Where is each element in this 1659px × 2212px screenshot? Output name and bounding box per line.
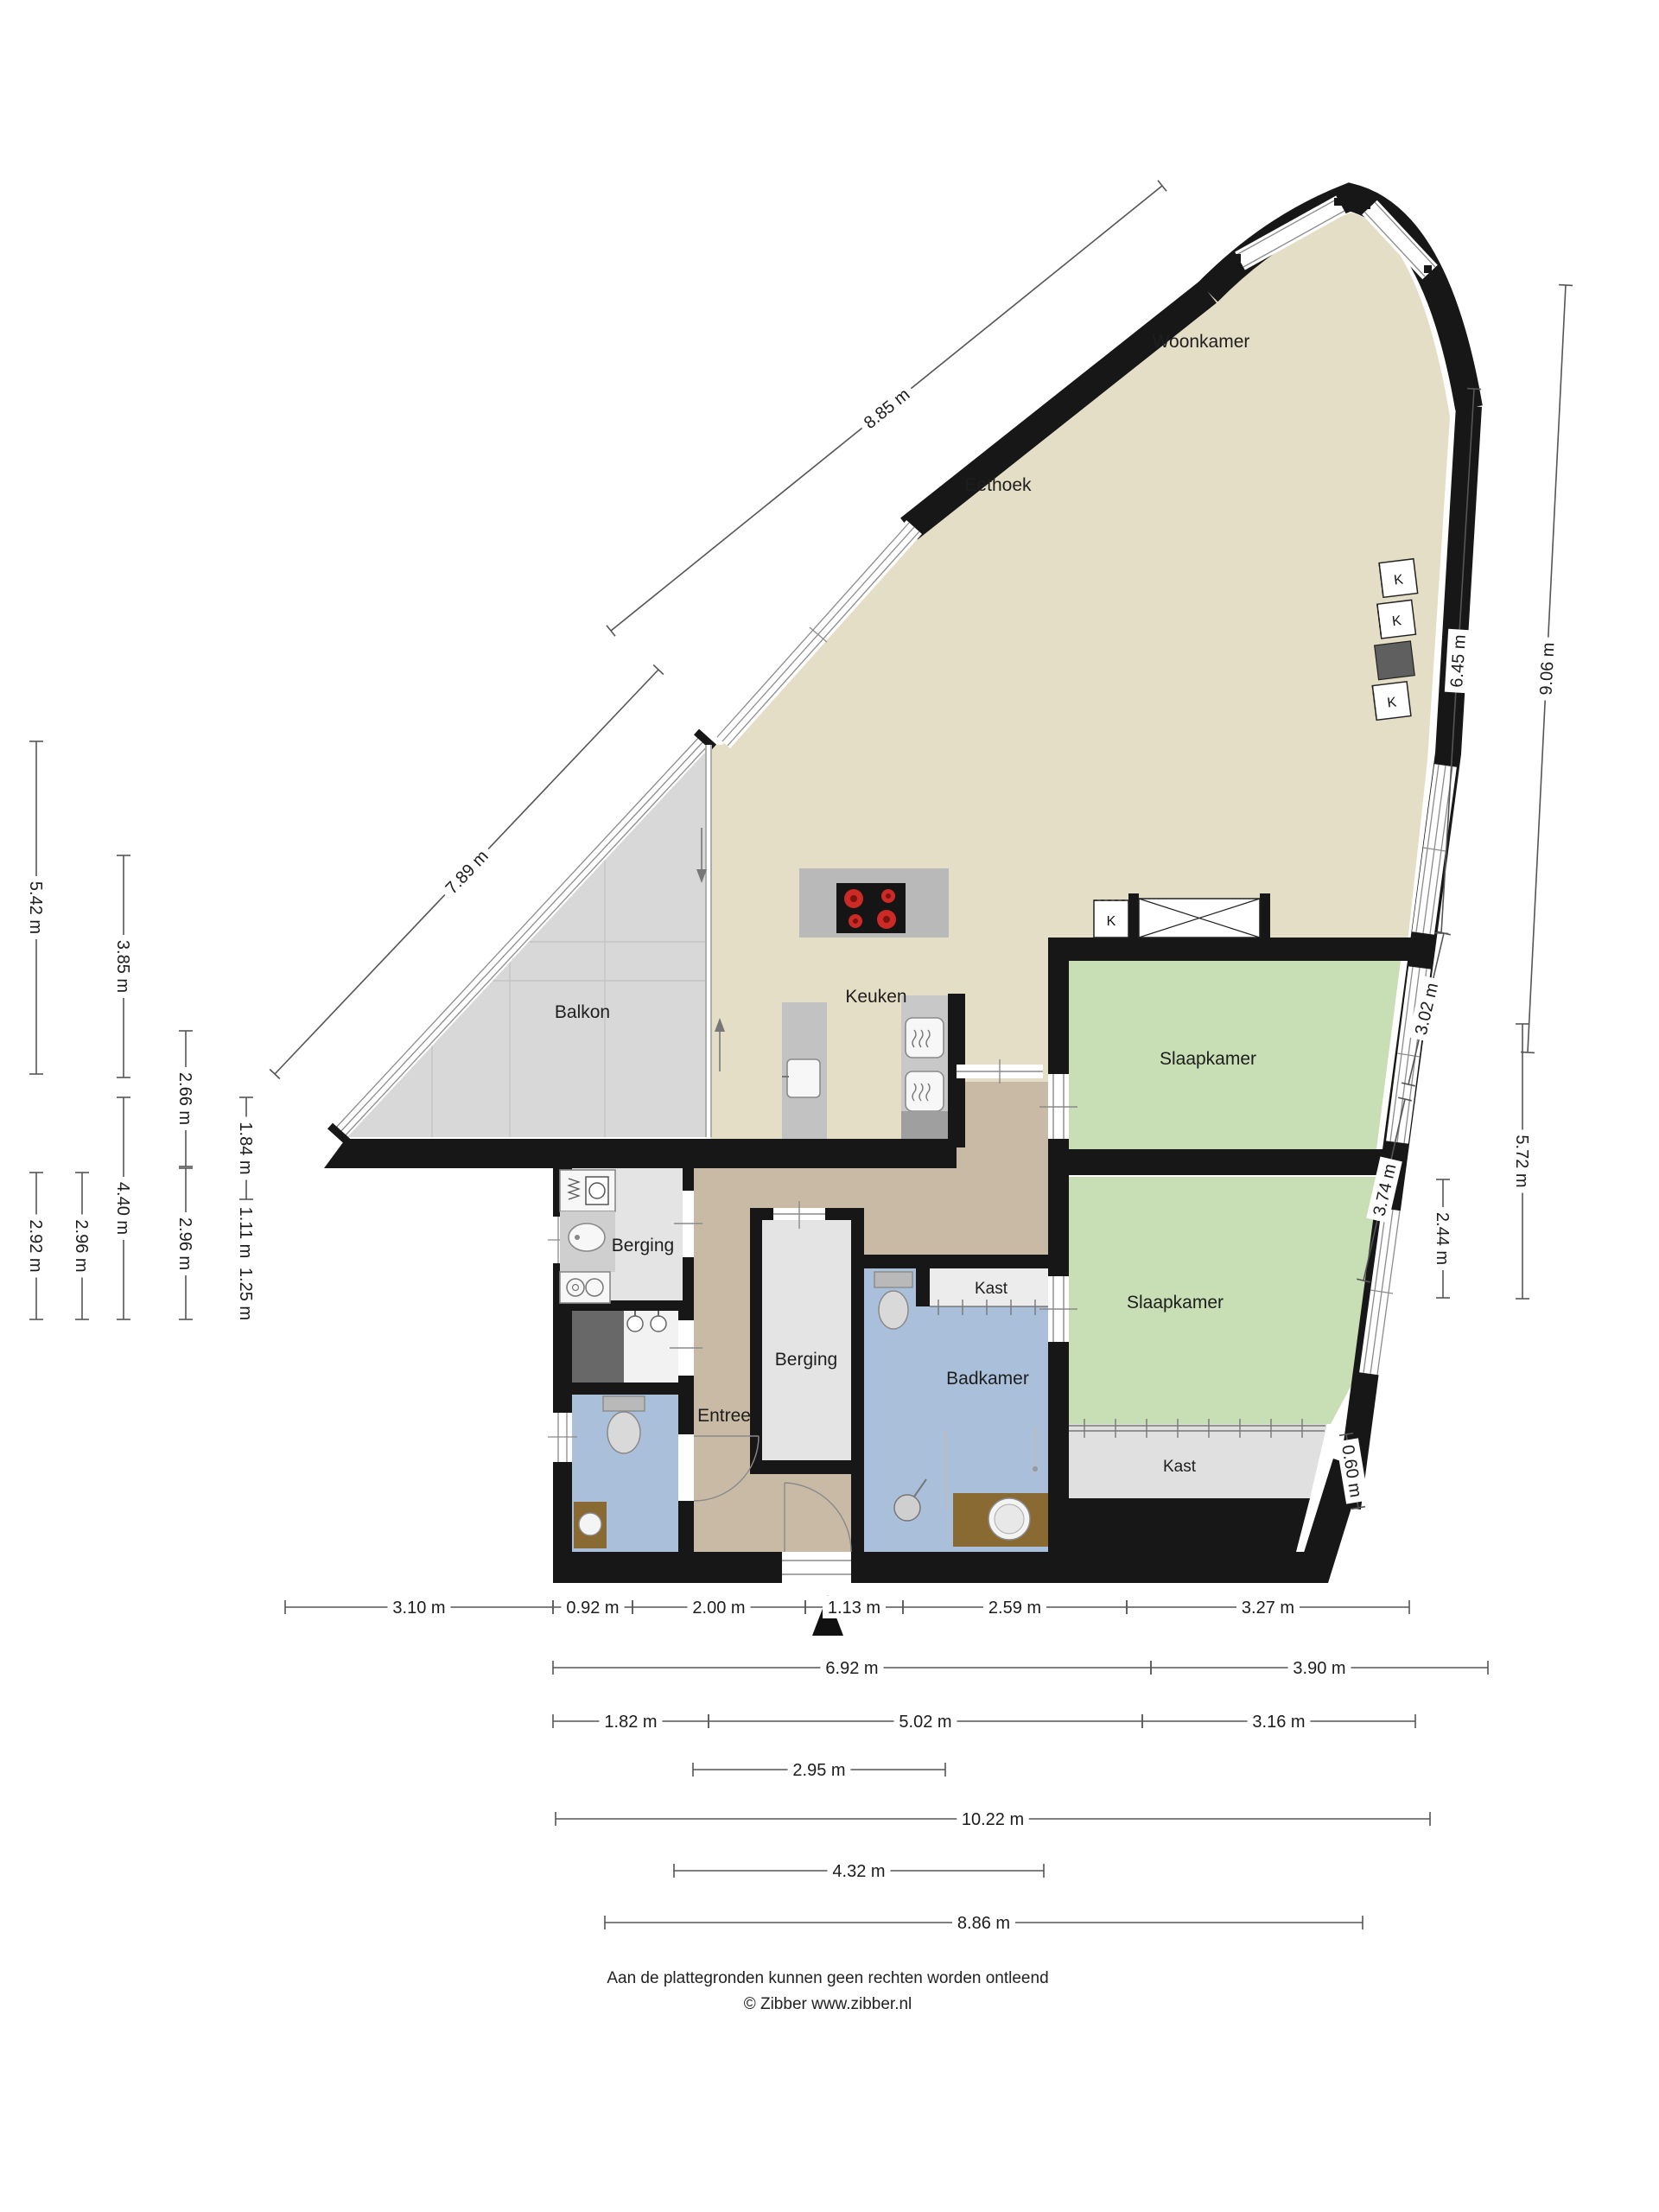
dimension: 1.84 m (235, 1097, 257, 1199)
kitchen-sink (787, 1059, 820, 1097)
dimension-label: 7.89 m (442, 847, 493, 899)
cooktop (836, 883, 906, 933)
footer: Aan de plattegronden kunnen geen rechten… (607, 1969, 1048, 2013)
dimension: 3.85 m (112, 855, 135, 1077)
dimension-label: 4.40 m (113, 1182, 132, 1235)
shaft-dark (1375, 641, 1415, 680)
dimension: 1.82 m (553, 1710, 709, 1732)
dimension: 2.96 m (71, 1173, 93, 1319)
dimension: 1.25 m (235, 1262, 257, 1325)
label-kast-badkamer: Kast (975, 1280, 1008, 1298)
dimension-label: 2.92 m (26, 1219, 45, 1272)
label-keuken: Keuken (845, 987, 906, 1007)
dimension: 5.02 m (709, 1710, 1142, 1732)
dimension-label: 1.25 m (236, 1268, 255, 1320)
label-woonkamer: Woonkamer (1153, 332, 1250, 352)
label-eethoek: Eethoek (964, 475, 1032, 495)
dimension: 4.32 m (674, 1859, 1044, 1882)
shower-head (894, 1495, 920, 1521)
dimension-label: 2.96 m (175, 1217, 194, 1270)
dimension-label: 2.44 m (1433, 1212, 1452, 1265)
dimension: 2.96 m (175, 1168, 197, 1319)
dimension: 9.06 m (1521, 285, 1573, 1053)
label-slaapkamer-1: Slaapkamer (1160, 1049, 1256, 1069)
dimension-label: 3.27 m (1242, 1599, 1294, 1618)
dimension: 5.42 m (25, 741, 48, 1074)
duct-crossed-box (1139, 899, 1260, 938)
dimension: 10.22 m (556, 1808, 1430, 1830)
small-basin (579, 1513, 601, 1535)
label-kast-slaapkamer: Kast (1163, 1458, 1197, 1476)
label-badkamer: Badkamer (946, 1369, 1029, 1389)
dimension-label: 3.90 m (1293, 1659, 1345, 1678)
dimension: 2.92 m (25, 1173, 48, 1319)
floor-berging-2 (762, 1220, 851, 1460)
dimension-label: 5.72 m (1512, 1135, 1531, 1187)
floor-kast-slaapkamer (1069, 1424, 1327, 1498)
dimension: 1.11 m (235, 1201, 257, 1264)
dimension: 8.86 m (605, 1911, 1363, 1934)
dimension-label: 5.42 m (26, 881, 45, 934)
dimension-label: 4.32 m (832, 1862, 885, 1881)
dimension: 2.44 m (1432, 1179, 1454, 1298)
dimension: 2.59 m (903, 1596, 1127, 1618)
floor-slaapkamer-2 (1069, 1177, 1380, 1424)
dimension-label: 2.00 m (692, 1599, 745, 1618)
utility-sink (569, 1224, 605, 1251)
footer-disclaimer: Aan de plattegronden kunnen geen rechten… (607, 1969, 1048, 1987)
dimension: 6.92 m (553, 1656, 1151, 1679)
toilet-bowl (607, 1412, 640, 1453)
dimension-label: 2.95 m (792, 1761, 845, 1780)
label-berging-2: Berging (775, 1350, 837, 1370)
dimension-label: 6.92 m (825, 1659, 878, 1678)
dimension: 2.00 m (632, 1596, 805, 1618)
dimension-label: 3.10 m (392, 1599, 445, 1618)
dimension: 2.95 m (693, 1758, 945, 1781)
oven-tower (901, 995, 948, 1139)
label-berging-1: Berging (612, 1236, 674, 1255)
dimension-label: 1.13 m (828, 1599, 880, 1618)
dimension: 5.72 m (1511, 1024, 1534, 1299)
label-balkon: Balkon (555, 1002, 610, 1022)
dimension-label: 2.66 m (175, 1072, 194, 1125)
floorplan-canvas: K K K K (0, 0, 1659, 2212)
dimension: 3.90 m (1151, 1656, 1488, 1679)
dimension-label: 1.84 m (236, 1122, 255, 1174)
dimension-label: 3.16 m (1252, 1713, 1305, 1732)
dimension-label: 3.85 m (113, 940, 132, 993)
bath-toilet-bowl (879, 1291, 908, 1329)
dimension: 0.92 m (553, 1596, 632, 1618)
shaft-k-4: K (1107, 914, 1116, 929)
dimension: 4.40 m (112, 1097, 135, 1319)
dimension-label: 5.02 m (899, 1713, 951, 1732)
label-entree: Entree (697, 1406, 751, 1426)
kitchen-counter (782, 1002, 827, 1139)
dimension: 2.66 m (175, 1031, 197, 1166)
bedroom-shaft: K (1094, 900, 1128, 938)
dimension: 3.16 m (1142, 1710, 1415, 1732)
dimension: 1.13 m (805, 1596, 903, 1618)
dimension-label: 10.22 m (962, 1810, 1024, 1829)
dimension-label: 2.96 m (72, 1219, 91, 1272)
laundry-area (560, 1170, 615, 1303)
dimension-label: 2.59 m (988, 1599, 1041, 1618)
dimension-label: 9.06 m (1536, 642, 1558, 696)
kitchen-island (799, 868, 949, 938)
label-slaapkamer-2: Slaapkamer (1127, 1293, 1224, 1313)
dimension-label: 8.86 m (957, 1914, 1010, 1933)
dimension-label: 1.11 m (236, 1207, 255, 1259)
floorplan-page: K K K K (0, 0, 1659, 2212)
dimension-label: 1.82 m (604, 1713, 657, 1732)
dimension-label: 0.92 m (566, 1599, 619, 1618)
dimension: 3.10 m (285, 1596, 553, 1618)
dimension: 3.27 m (1127, 1596, 1409, 1618)
floor-meterkast-shaft (572, 1306, 624, 1382)
dimension-label: 6.45 m (1447, 634, 1470, 688)
footer-copyright: © Zibber www.zibber.nl (744, 1995, 912, 2013)
